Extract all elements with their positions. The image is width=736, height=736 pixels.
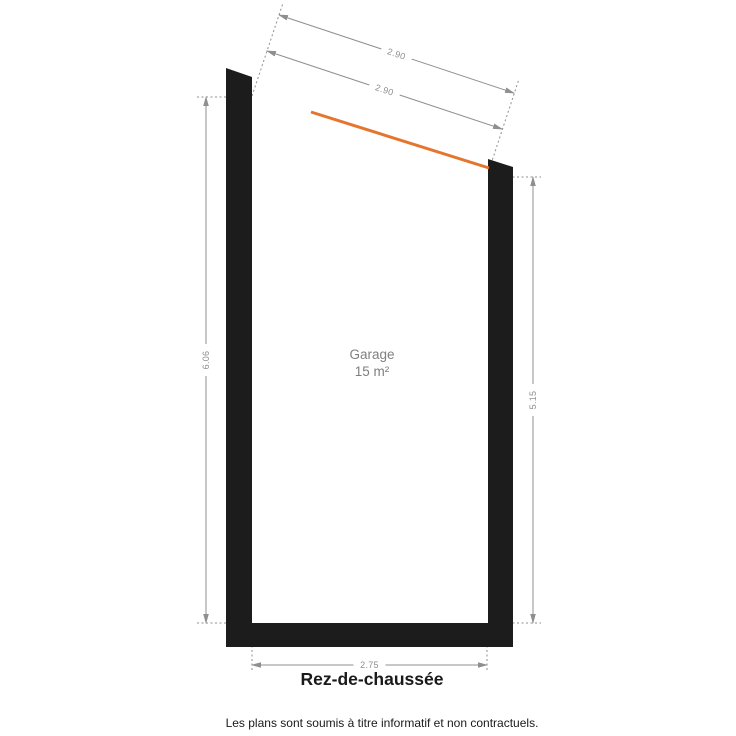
- extension-line-top-right: [491, 79, 519, 164]
- floor-title: Rez-de-chaussée: [301, 669, 444, 689]
- dimension-top-inner: 2.90: [267, 51, 502, 129]
- bottom-wall: [226, 623, 513, 647]
- right-wall: [488, 159, 513, 647]
- disclaimer-text: Les plans sont soumis à titre informatif…: [226, 716, 539, 730]
- room-label-group: Garage 15 m²: [349, 347, 394, 379]
- dimension-label-left: 6.06: [201, 351, 211, 370]
- dimension-top-outer: 2.90: [279, 15, 514, 93]
- room-name-label: Garage: [349, 347, 394, 362]
- extension-line-top-left: [252, 3, 283, 96]
- floor-plan-drawing: 2.90 2.90 6.06 5.15: [0, 0, 736, 736]
- dimension-label-right: 5.15: [528, 391, 538, 410]
- left-wall: [226, 68, 252, 647]
- floor-plan-page: 2.90 2.90 6.06 5.15: [0, 0, 736, 736]
- roof-slope-line: [311, 112, 489, 168]
- room-area-label: 15 m²: [355, 364, 390, 379]
- dimension-right: 5.15: [527, 177, 539, 623]
- dimension-left: 6.06: [200, 97, 212, 623]
